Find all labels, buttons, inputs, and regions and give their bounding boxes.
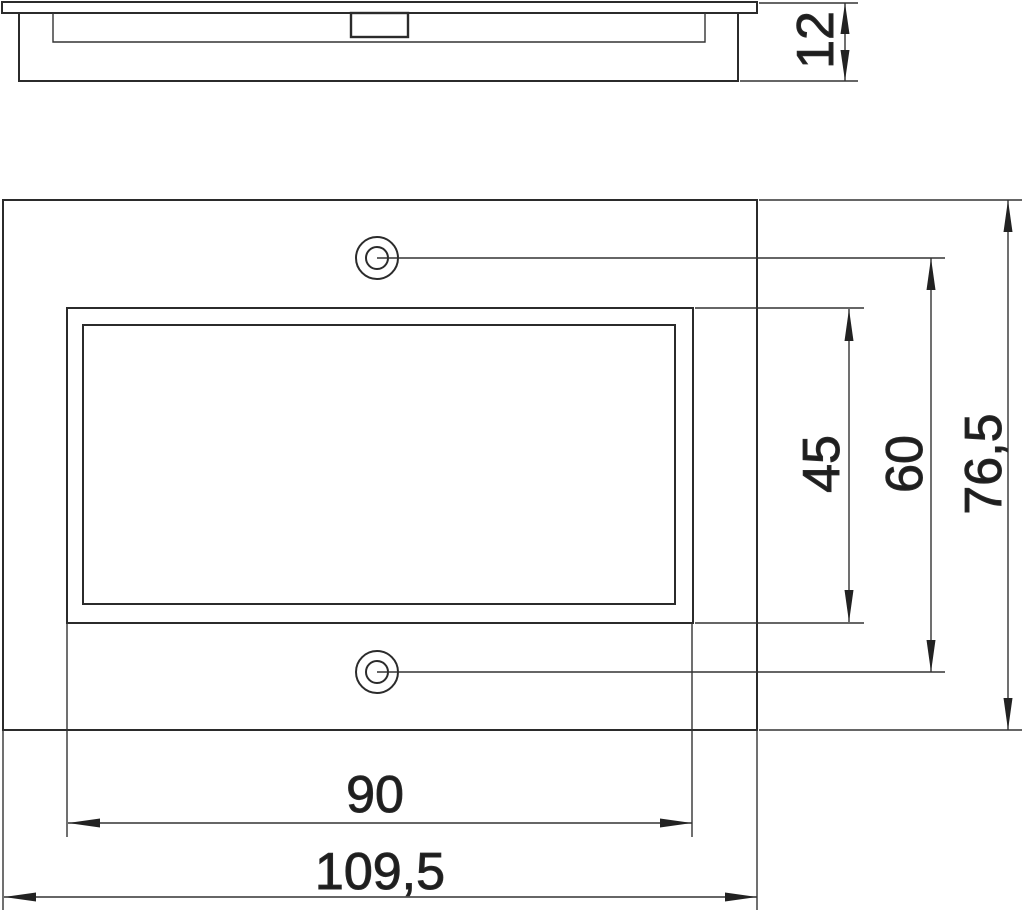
side-view: 12 [2,2,858,81]
dimension-label-cutout-width: 90 [346,766,404,824]
technical-drawing-page: 12 [0,0,1024,912]
arrowhead-left-icon [68,819,100,828]
arrowhead-up-icon [1004,200,1013,232]
dimension-label-hole-spacing: 60 [876,435,934,493]
arrowhead-down-icon [927,640,936,672]
side-view-flange-outline [2,2,757,13]
arrowhead-left-icon [4,893,36,902]
arrowhead-down-icon [845,590,854,622]
dimension-label-thickness: 12 [787,11,845,69]
dimension-drawing: 12 [0,0,1024,912]
side-view-latch-tab [351,13,408,37]
arrowhead-up-icon [927,258,936,290]
dimension-label-cutout-height: 45 [793,435,851,493]
arrowhead-right-icon [660,819,692,828]
front-view-window-outer [67,308,693,623]
arrowhead-right-icon [725,893,757,902]
arrowhead-down-icon [1004,698,1013,730]
side-view-body-outline [19,13,738,81]
front-view: 45 60 76,5 90 10 [3,200,1022,910]
front-view-window-inner [83,325,675,604]
dimension-label-overall-width: 109,5 [315,843,445,901]
dimension-label-overall-height: 76,5 [955,413,1013,514]
arrowhead-up-icon [845,309,854,341]
